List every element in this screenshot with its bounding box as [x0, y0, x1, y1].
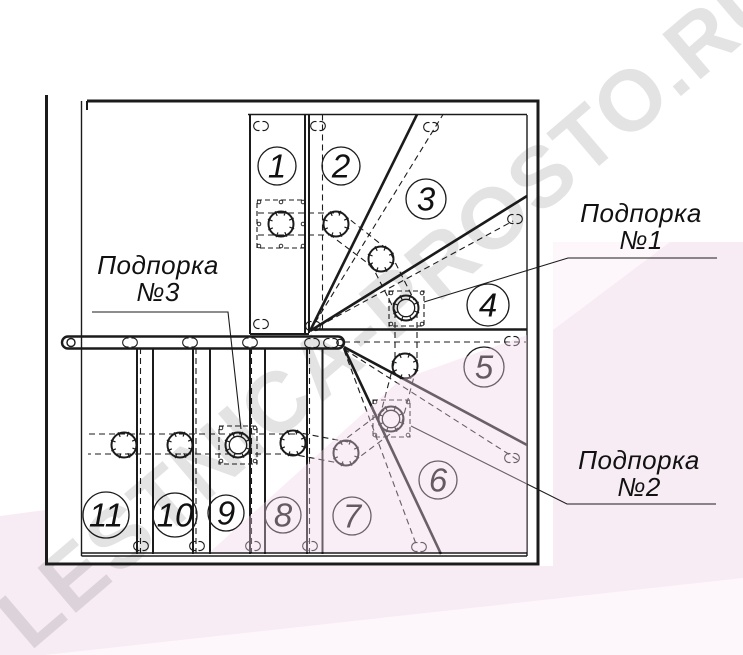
baluster: [323, 211, 349, 237]
step-label-4: 4: [467, 284, 509, 326]
support-label-3-line1: Подпорка: [84, 252, 232, 279]
support-label-2-line1: Подпорка: [560, 447, 718, 474]
svg-text:1: 1: [268, 148, 286, 185]
support-label-1-line2: №1: [562, 227, 720, 254]
svg-text:3: 3: [417, 181, 436, 218]
svg-text:11: 11: [89, 497, 123, 534]
svg-text:10: 10: [157, 497, 194, 534]
svg-text:9: 9: [217, 495, 235, 532]
support-label-1: Подпорка №1: [562, 200, 720, 254]
support-box-top: [257, 200, 305, 248]
support-label-3: Подпорка №3: [84, 252, 232, 306]
step-label-2: 2: [322, 147, 360, 185]
step-label-3: 3: [406, 179, 446, 219]
svg-text:4: 4: [479, 287, 497, 324]
step-label-11: 11: [83, 492, 129, 538]
support-label-2: Подпорка №2: [560, 447, 718, 501]
staircase-plan-page: LESTNICA-PROSTO.RU: [0, 0, 743, 655]
fastener-icon: [123, 338, 138, 347]
support-label-3-line2: №3: [84, 279, 232, 306]
svg-text:2: 2: [331, 148, 350, 185]
step-label-1: 1: [258, 147, 296, 185]
staircase-plan-drawing: LESTNICA-PROSTO.RU: [0, 0, 743, 655]
baluster: [111, 432, 137, 458]
support-label-2-line2: №2: [560, 474, 718, 501]
support-label-1-line1: Подпорка: [562, 200, 720, 227]
step-label-10: 10: [153, 493, 197, 537]
fastener-icon: [243, 338, 258, 347]
fastener-icon: [183, 338, 198, 347]
baluster: [268, 211, 294, 237]
